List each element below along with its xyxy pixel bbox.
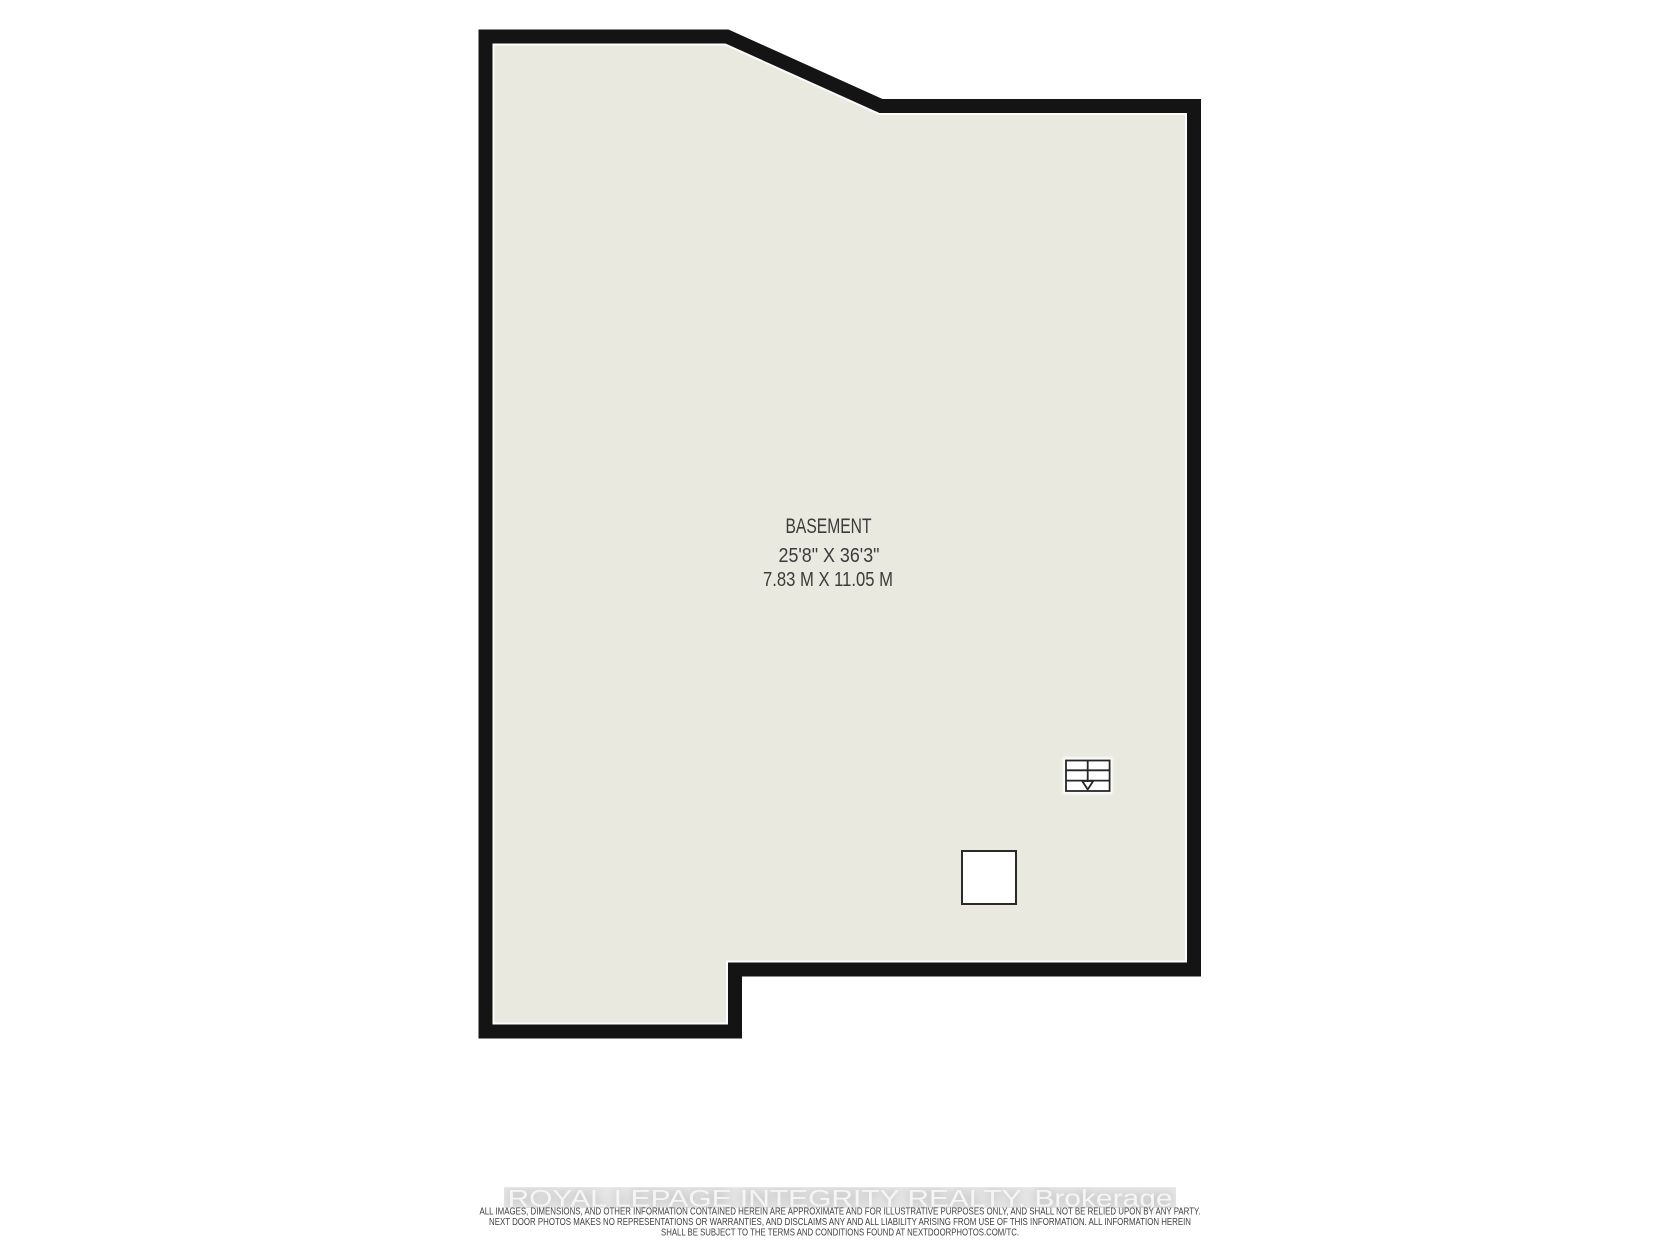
svg-text:BASEMENT: BASEMENT — [786, 515, 872, 538]
svg-text:25'8" X 36'3": 25'8" X 36'3" — [779, 545, 880, 567]
svg-text:SHALL BE SUBJECT TO THE TERMS: SHALL BE SUBJECT TO THE TERMS AND CONDIT… — [661, 1228, 1019, 1239]
svg-text:NEXT DOOR PHOTOS MAKES NO REPR: NEXT DOOR PHOTOS MAKES NO REPRESENTATION… — [489, 1217, 1191, 1228]
svg-text:7.83 M X 11.05 M: 7.83 M X 11.05 M — [763, 569, 893, 591]
svg-text:ALL IMAGES, DIMENSIONS, AND OT: ALL IMAGES, DIMENSIONS, AND OTHER INFORM… — [480, 1207, 1201, 1218]
